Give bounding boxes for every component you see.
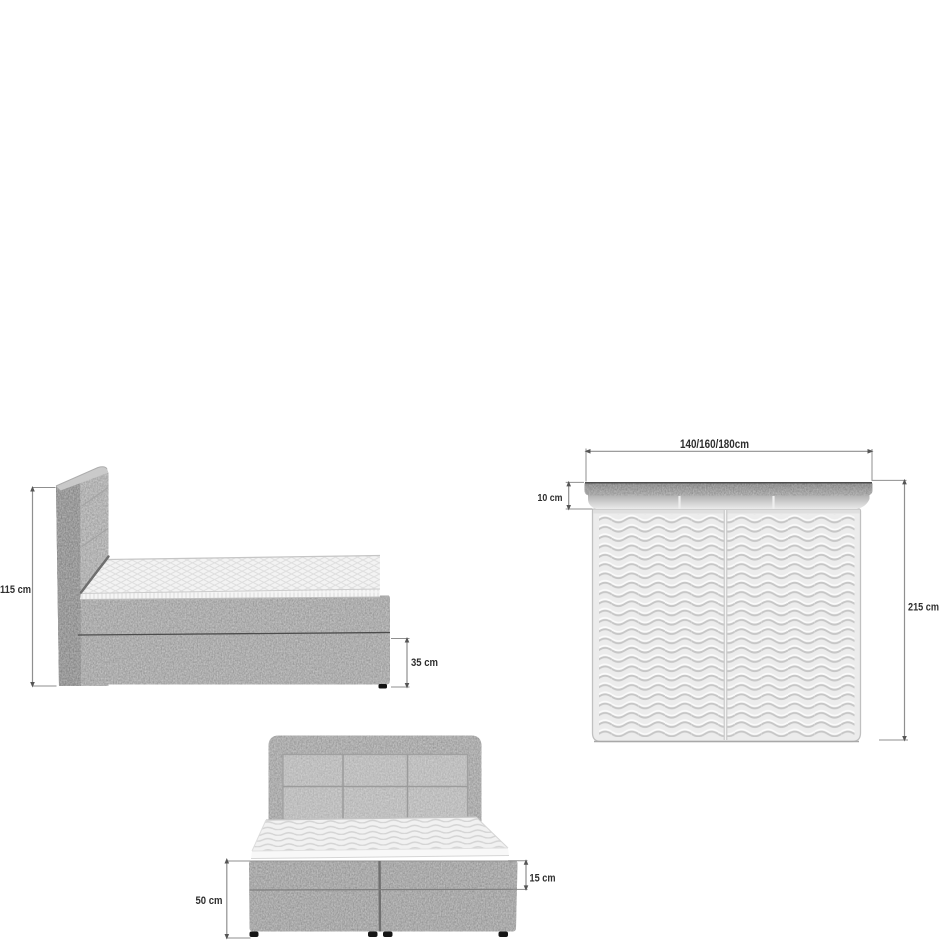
svg-text:50 cm: 50 cm <box>196 895 223 907</box>
svg-text:140/160/180cm: 140/160/180cm <box>680 437 749 451</box>
svg-text:15 cm: 15 cm <box>530 873 556 885</box>
svg-text:115 cm: 115 cm <box>0 584 31 596</box>
svg-text:215 cm: 215 cm <box>908 602 939 614</box>
svg-text:10 cm: 10 cm <box>538 492 563 504</box>
svg-text:35 cm: 35 cm <box>411 657 438 669</box>
